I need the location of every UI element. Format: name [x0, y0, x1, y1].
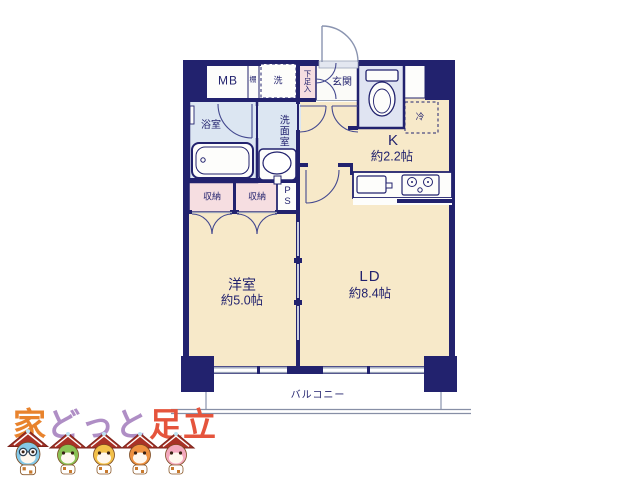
- label-shelf: 棚: [250, 76, 257, 83]
- floor-fills: [189, 62, 452, 370]
- kitchen-sink-icon: [357, 176, 386, 193]
- toilet-bowl-icon: [369, 82, 395, 116]
- orange-house-mascot-icon: [120, 431, 160, 477]
- label-western-room-size: 約5.0帖: [221, 294, 263, 307]
- basin-faucet: [274, 176, 281, 184]
- floorplan-page: MB 棚 洗 下足入 玄関 浴室 洗面室 収納 収納 PS 冷 K 約2.2帖 …: [0, 0, 640, 480]
- label-ps: PS: [282, 185, 292, 207]
- label-storage-b: 収納: [248, 192, 266, 201]
- label-fridge: 冷: [416, 113, 425, 122]
- label-bathroom: 浴室: [201, 121, 221, 132]
- shower-fixture-icon: [190, 106, 194, 124]
- label-entrance: 玄関: [332, 78, 352, 89]
- label-shoe-box: 下足入: [303, 70, 311, 93]
- label-ld: LD: [359, 269, 380, 285]
- pink-house-mascot-icon: [156, 431, 196, 477]
- label-ld-size: 約8.4帖: [349, 287, 391, 300]
- label-balcony: バルコニー: [291, 391, 346, 402]
- blue-house-mascot-icon: [6, 428, 50, 478]
- sink-faucet: [386, 183, 392, 188]
- yellow-house-mascot-icon: [84, 431, 124, 477]
- entrance-door-arc: [322, 26, 358, 62]
- void-area: [404, 64, 425, 98]
- label-washer: 洗: [273, 76, 282, 85]
- label-mb: MB: [218, 75, 238, 88]
- label-kitchen-size: 約2.2帖: [371, 150, 413, 163]
- label-washroom: 洗面室: [277, 115, 288, 148]
- toilet-tank-icon: [366, 70, 398, 81]
- label-western-room: 洋室: [228, 278, 256, 293]
- entrance-door-sill: [319, 61, 358, 68]
- label-storage-a: 収納: [203, 192, 221, 201]
- green-house-mascot-icon: [48, 431, 88, 477]
- label-kitchen: K: [388, 133, 398, 149]
